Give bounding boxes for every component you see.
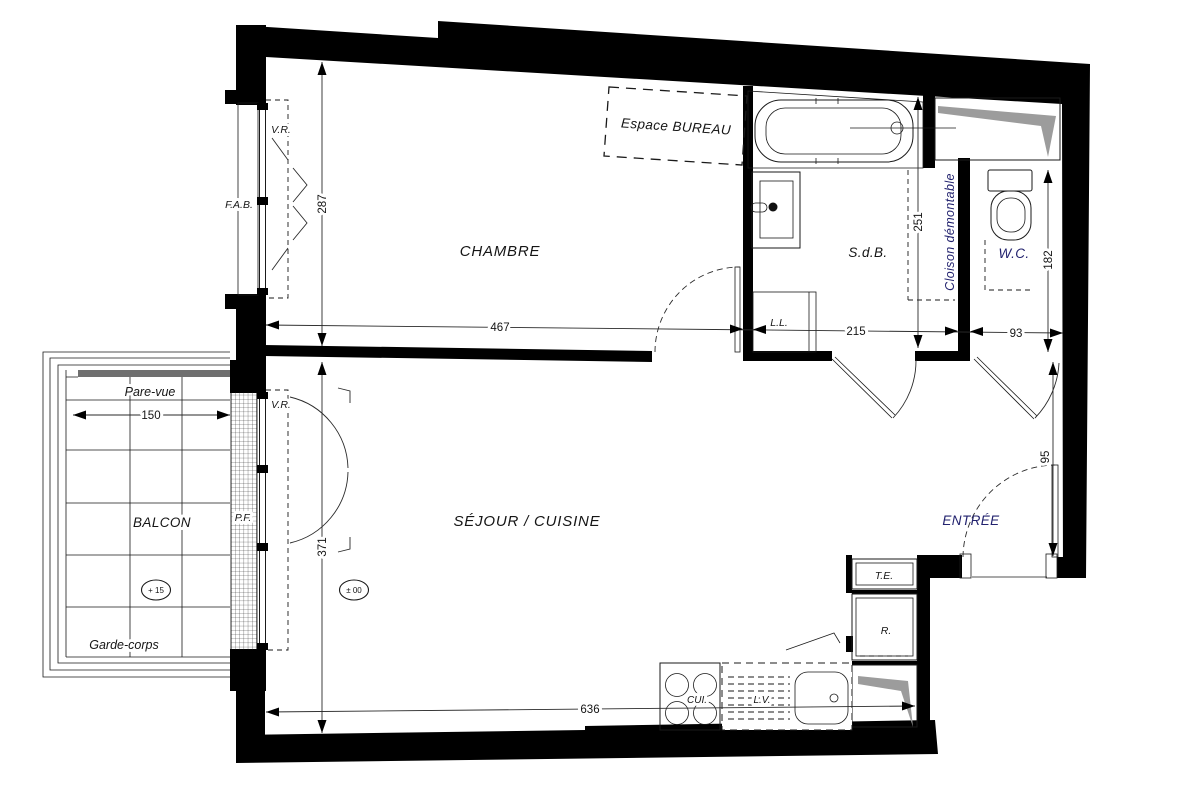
room-label-wc: W.C.: [998, 246, 1029, 261]
floor-plan-drawing: CHAMBRE SÉJOUR / CUISINE S.d.B. W.C. ENT…: [0, 0, 1185, 800]
level-text-interieur: ± 00: [346, 586, 362, 595]
balcony-door-swing: [290, 388, 350, 552]
kitchen-sink-dishwasher: [722, 633, 852, 730]
floor-plan-page: CHAMBRE SÉJOUR / CUISINE S.d.B. W.C. ENT…: [0, 0, 1185, 800]
label-pf: P.F.: [235, 512, 252, 524]
dim-text-93: 93: [1010, 328, 1023, 340]
label-cloison-demontable: Cloison démontable: [943, 173, 957, 291]
dim-text-287: 287: [317, 194, 329, 213]
interior-walls: [264, 86, 970, 665]
sink-faucet: [769, 203, 778, 212]
label-espace-bureau: Espace BUREAU: [621, 115, 732, 137]
wc-door: [974, 357, 1059, 419]
room-label-balcon: BALCON: [133, 515, 191, 530]
label-cui: CUI.: [687, 695, 707, 706]
dim-text-371: 371: [317, 537, 329, 556]
level-text-balcon: + 15: [148, 586, 164, 595]
duct-bottom-right: [852, 665, 917, 727]
dim-text-251: 251: [913, 212, 925, 231]
label-fab: F.A.B.: [225, 199, 253, 211]
dim-text-182: 182: [1043, 250, 1055, 269]
toilet: [988, 170, 1032, 240]
bathroom-sink: [751, 172, 800, 248]
label-vr-balcon: V.R.: [271, 399, 291, 411]
label-pare-vue: Pare-vue: [125, 385, 176, 399]
label-te: T.E.: [875, 570, 893, 582]
duct-top-right: [935, 98, 1060, 160]
room-label-chambre: CHAMBRE: [460, 243, 541, 260]
dim-text-467: 467: [490, 322, 509, 334]
label-lv: L.V.: [753, 695, 770, 706]
room-label-sdb: S.d.B.: [848, 245, 887, 260]
room-label-entree: ENTRÉE: [942, 513, 1000, 528]
dim-text-636: 636: [580, 704, 599, 716]
chambre-door: [655, 267, 740, 352]
balcony-top-band: [78, 370, 230, 377]
counter-flap-line: [786, 633, 840, 650]
dim-text-150: 150: [141, 410, 160, 422]
sdb-door: [832, 357, 916, 418]
dimension-chain-horizontal: [266, 321, 1063, 338]
label-ll: L.L.: [770, 317, 788, 329]
label-garde-corps: Garde-corps: [89, 638, 158, 652]
dim-text-215: 215: [846, 326, 865, 338]
window-opening-chevrons: [272, 138, 307, 270]
room-label-sejour-cuisine: SÉJOUR / CUISINE: [454, 513, 601, 530]
label-vr-chambre: V.R.: [271, 124, 291, 136]
balcony-door-reservation-dashed: [266, 390, 288, 650]
balcony-border-mid: [50, 358, 230, 670]
label-r: R.: [881, 625, 892, 637]
dim-text-95: 95: [1040, 451, 1052, 464]
